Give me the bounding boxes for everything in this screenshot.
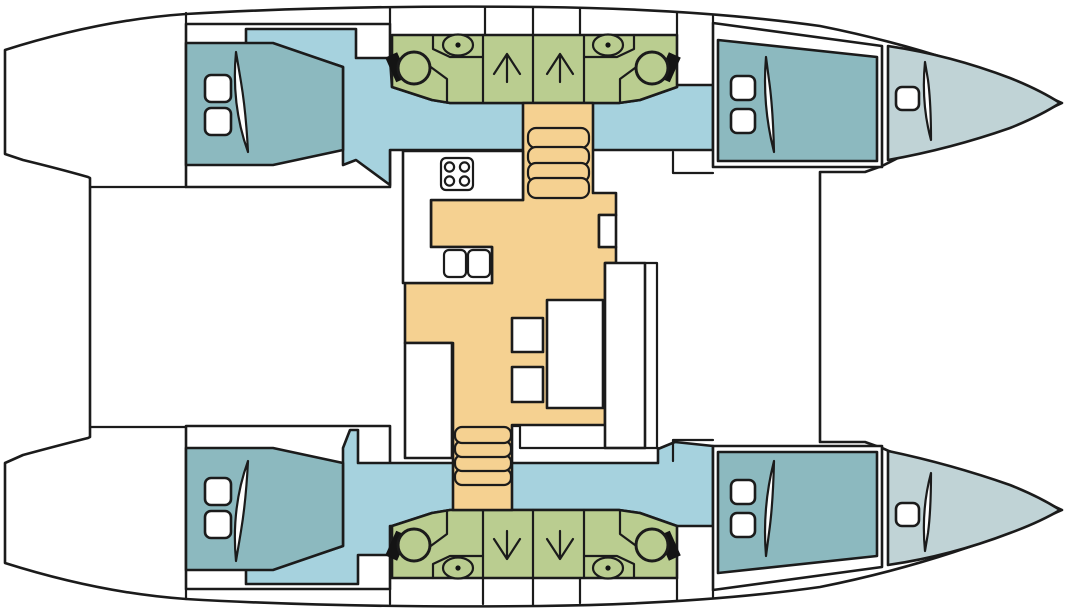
catamaran-floorplan <box>0 0 1069 613</box>
port-aft-pillow-2 <box>205 108 231 135</box>
step <box>528 128 589 148</box>
stbd-fwd-pillow-1 <box>731 513 755 537</box>
stbd-aft-bed <box>186 448 343 570</box>
stbd-fwd-pillow-2 <box>731 480 755 504</box>
stbd-washbasin-right-drain <box>605 565 610 570</box>
burner-icon <box>445 162 454 171</box>
burner-icon <box>460 176 469 185</box>
floorplan-svg <box>0 0 1069 613</box>
galley-sink-left-icon <box>444 250 466 277</box>
dining-table <box>547 300 603 408</box>
burner-icon <box>460 162 469 171</box>
galley-cabinet <box>405 343 452 458</box>
step <box>528 178 589 198</box>
salon-seat-2 <box>512 367 543 402</box>
port-fwd-pillow-1 <box>731 76 755 100</box>
port-forepeak-pillow <box>896 87 919 110</box>
stbd-companionway-steps <box>455 427 511 485</box>
step <box>455 427 511 443</box>
port-washbasin-left-drain <box>455 42 460 47</box>
burner-icon <box>445 176 454 185</box>
stbd-aft-pillow-1 <box>205 478 231 505</box>
stbd-forepeak-pillow <box>896 503 919 526</box>
stbd-toilet-left-icon <box>398 529 430 561</box>
galley-sink-right-icon <box>468 250 490 277</box>
port-aft-pillow-1 <box>205 75 231 102</box>
port-toilet-right-icon <box>636 52 668 84</box>
salon-seat-1 <box>512 318 543 352</box>
port-companionway-steps <box>528 128 589 198</box>
nav-seat <box>599 215 616 247</box>
stbd-toilet-right-icon <box>636 529 668 561</box>
port-fwd-pillow-2 <box>731 109 755 133</box>
stbd-washbasin-left-drain <box>455 565 460 570</box>
bench-seat <box>605 263 645 448</box>
stbd-aft-pillow-2 <box>205 511 231 538</box>
port-washbasin-right-drain <box>605 42 610 47</box>
port-aft-bed <box>186 43 343 165</box>
port-toilet-left-icon <box>398 52 430 84</box>
